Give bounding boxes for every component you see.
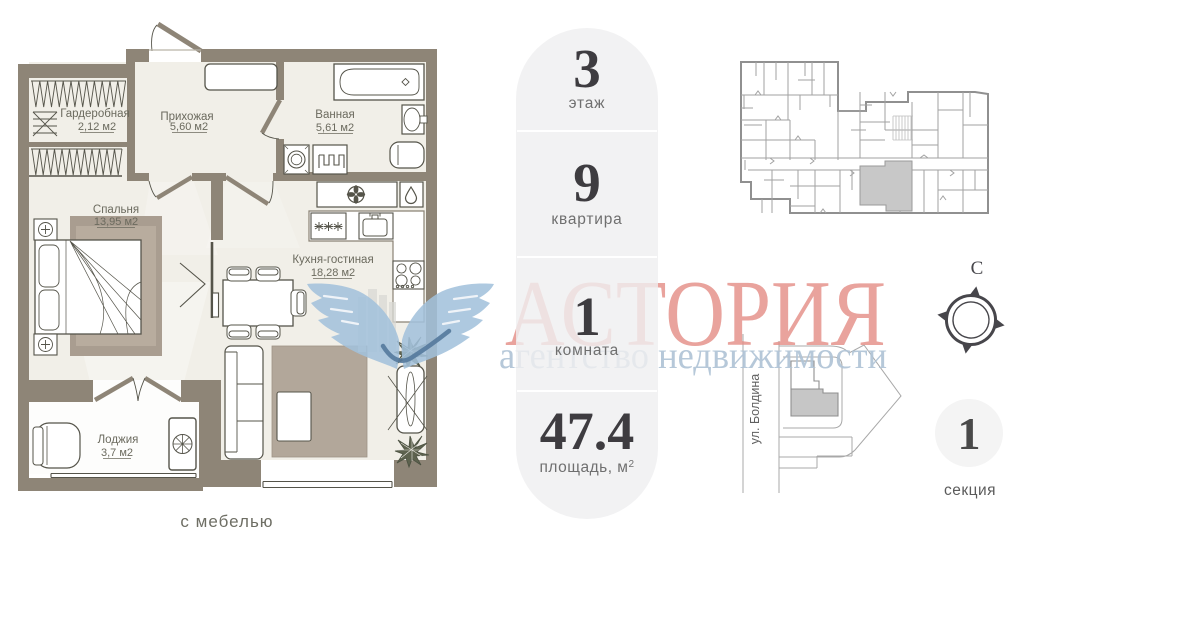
svg-text:9: 9 <box>573 152 601 213</box>
svg-text:ул. Болдина: ул. Болдина <box>748 374 762 445</box>
svg-text:Ванная: Ванная <box>315 109 354 121</box>
svg-text:этаж: этаж <box>569 95 606 112</box>
svg-text:5,60 м2: 5,60 м2 <box>170 121 208 133</box>
svg-text:1: 1 <box>573 286 601 347</box>
svg-text:47.4: 47.4 <box>540 401 635 461</box>
svg-text:2,12 м2: 2,12 м2 <box>78 121 116 133</box>
svg-text:квартира: квартира <box>551 211 622 228</box>
svg-text:Кухня-гостиная: Кухня-гостиная <box>292 254 373 266</box>
svg-text:Гардеробная: Гардеробная <box>60 108 130 120</box>
svg-text:13,95 м2: 13,95 м2 <box>94 216 138 228</box>
svg-text:с мебелью: с мебелью <box>180 512 273 531</box>
svg-text:С: С <box>971 258 984 279</box>
svg-text:5,61 м2: 5,61 м2 <box>316 122 354 134</box>
svg-text:3: 3 <box>573 38 601 99</box>
svg-text:Спальня: Спальня <box>93 204 139 216</box>
svg-text:площадь, м2: площадь, м2 <box>539 459 634 476</box>
svg-text:3,7 м2: 3,7 м2 <box>101 447 133 459</box>
svg-text:комната: комната <box>555 342 619 359</box>
svg-text:1: 1 <box>958 408 981 459</box>
svg-text:секция: секция <box>944 482 996 499</box>
svg-text:18,28 м2: 18,28 м2 <box>311 267 355 279</box>
svg-text:Лоджия: Лоджия <box>98 434 139 446</box>
